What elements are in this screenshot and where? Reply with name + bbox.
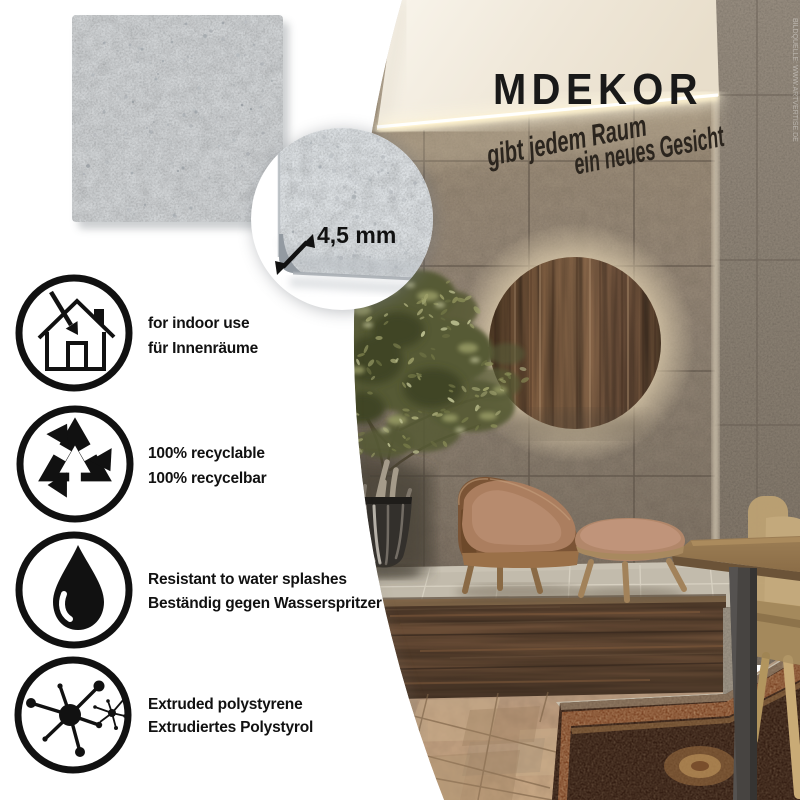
svg-text:für Innenräume: für Innenräume xyxy=(148,340,259,357)
svg-text:Extruded polystyrene: Extruded polystyrene xyxy=(148,696,303,713)
svg-text:Resistant to water splashes: Resistant to water splashes xyxy=(148,571,347,588)
svg-text:100% recyclable: 100% recyclable xyxy=(148,445,265,462)
svg-text:BILDQUELLE: WWW.ARTVERTISE.DE: BILDQUELLE: WWW.ARTVERTISE.DE xyxy=(791,18,798,142)
svg-text:4,5 mm: 4,5 mm xyxy=(317,222,396,248)
svg-text:for indoor use: for indoor use xyxy=(148,315,250,332)
svg-text:100% recycelbar: 100% recycelbar xyxy=(148,470,267,487)
svg-text:Beständig gegen Wasserspritzer: Beständig gegen Wasserspritzer xyxy=(148,595,382,612)
svg-text:Extrudiertes Polystyrol: Extrudiertes Polystyrol xyxy=(148,719,313,736)
svg-text:MDEKOR: MDEKOR xyxy=(493,65,703,114)
